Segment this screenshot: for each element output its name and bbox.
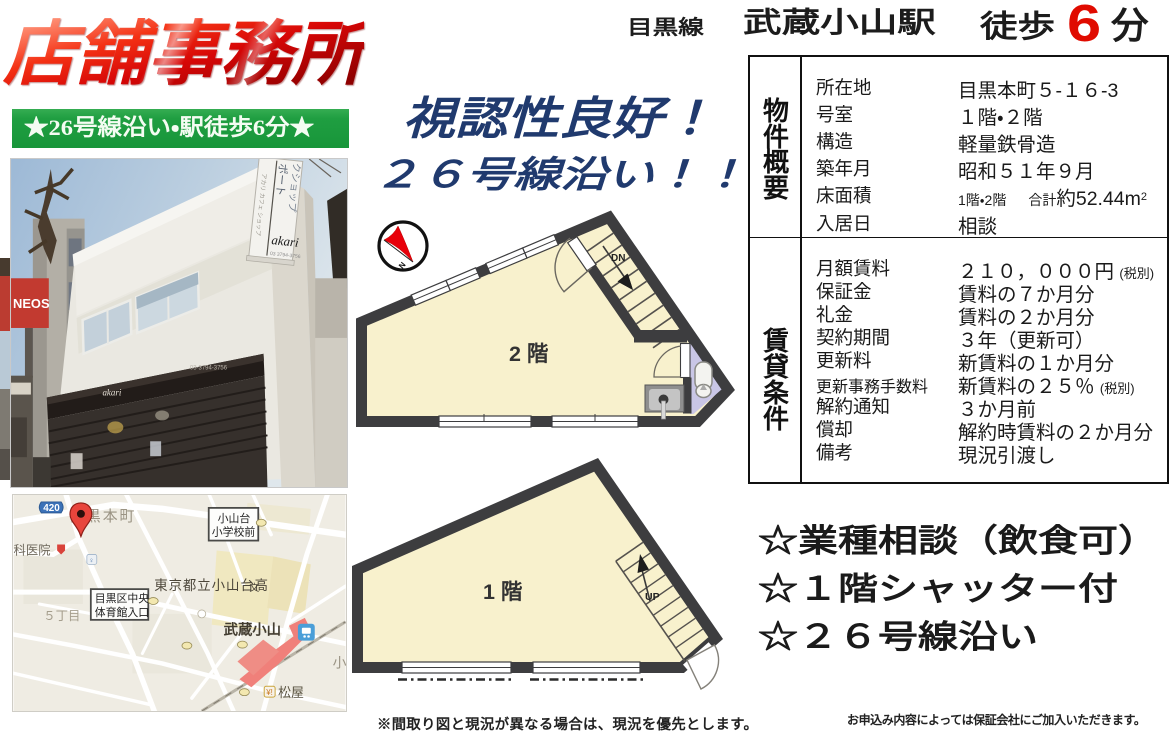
svg-text:UP: UP (645, 591, 660, 603)
svg-text:DN: DN (611, 253, 625, 264)
svg-text:2 階: 2 階 (509, 342, 549, 366)
svg-text:1 階: 1 階 (483, 580, 523, 604)
